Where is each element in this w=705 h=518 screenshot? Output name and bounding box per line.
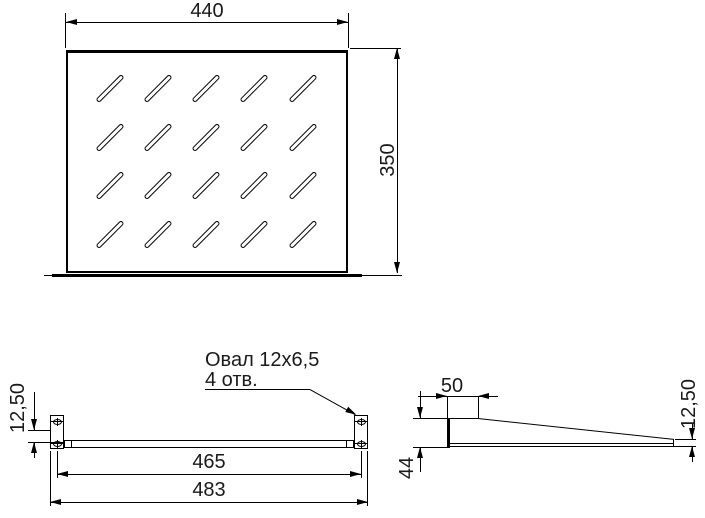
dim-350-arrow-bottom xyxy=(394,262,400,273)
dim-1250-side-ext-bottom xyxy=(675,446,696,447)
shelf-bar xyxy=(64,440,354,448)
plate-bottom-line xyxy=(447,446,675,447)
dim-465-line xyxy=(57,474,361,475)
shelf-bar-step-left xyxy=(71,440,72,448)
dim-440-ext-right xyxy=(348,13,349,48)
dim-440-label: 440 xyxy=(66,1,348,21)
dim-1250-front-ext-bottom xyxy=(28,442,64,443)
technical-drawing: 440 350 xyxy=(0,0,705,518)
callout-text-line1: Овал 12x6,5 xyxy=(205,350,319,370)
dim-1250-front-arrow-top xyxy=(31,419,37,430)
dim-50-label: 50 xyxy=(432,376,472,396)
callout-text-line2: 4 отв. xyxy=(205,370,258,390)
callout-leader-line xyxy=(310,389,356,415)
dim-1250-side-ext-top xyxy=(675,439,696,440)
shelf-bar-step-right xyxy=(346,440,347,448)
dim-44-ext-bottom xyxy=(413,447,450,448)
dim-44-arrow-top xyxy=(417,407,423,418)
dim-483-line xyxy=(50,502,368,503)
dim-50-arrow-right xyxy=(478,393,489,399)
flange-top-flat xyxy=(447,418,478,419)
dim-483-label: 483 xyxy=(50,480,368,500)
dim-1250-front-ext-top xyxy=(28,430,50,431)
callout-underline xyxy=(205,389,310,390)
dim-440-line xyxy=(66,22,348,23)
plate-top-line xyxy=(450,443,673,444)
dim-1250-front-label: 12,50 xyxy=(8,383,28,433)
flange-slope xyxy=(478,418,674,440)
dim-1250-side-arrow-bottom xyxy=(689,446,695,457)
dim-50-ext-left xyxy=(447,396,448,418)
dim-465-label: 465 xyxy=(57,452,361,472)
dim-44-label: 44 xyxy=(397,448,417,488)
dim-1250-front-arrow-bottom xyxy=(31,442,37,453)
front-edge-line xyxy=(52,274,362,277)
dim-44-ext-top xyxy=(413,418,447,419)
dim-350-label: 350 xyxy=(378,140,398,180)
front-edge-ext-left xyxy=(44,275,52,276)
dim-50-ext-right xyxy=(478,396,479,418)
dim-465-ext-right xyxy=(361,451,362,478)
front-edge-ext-right xyxy=(362,275,402,276)
dim-350-arrow-top xyxy=(394,48,400,59)
dim-1250-side-label: 12,50 xyxy=(679,378,699,430)
